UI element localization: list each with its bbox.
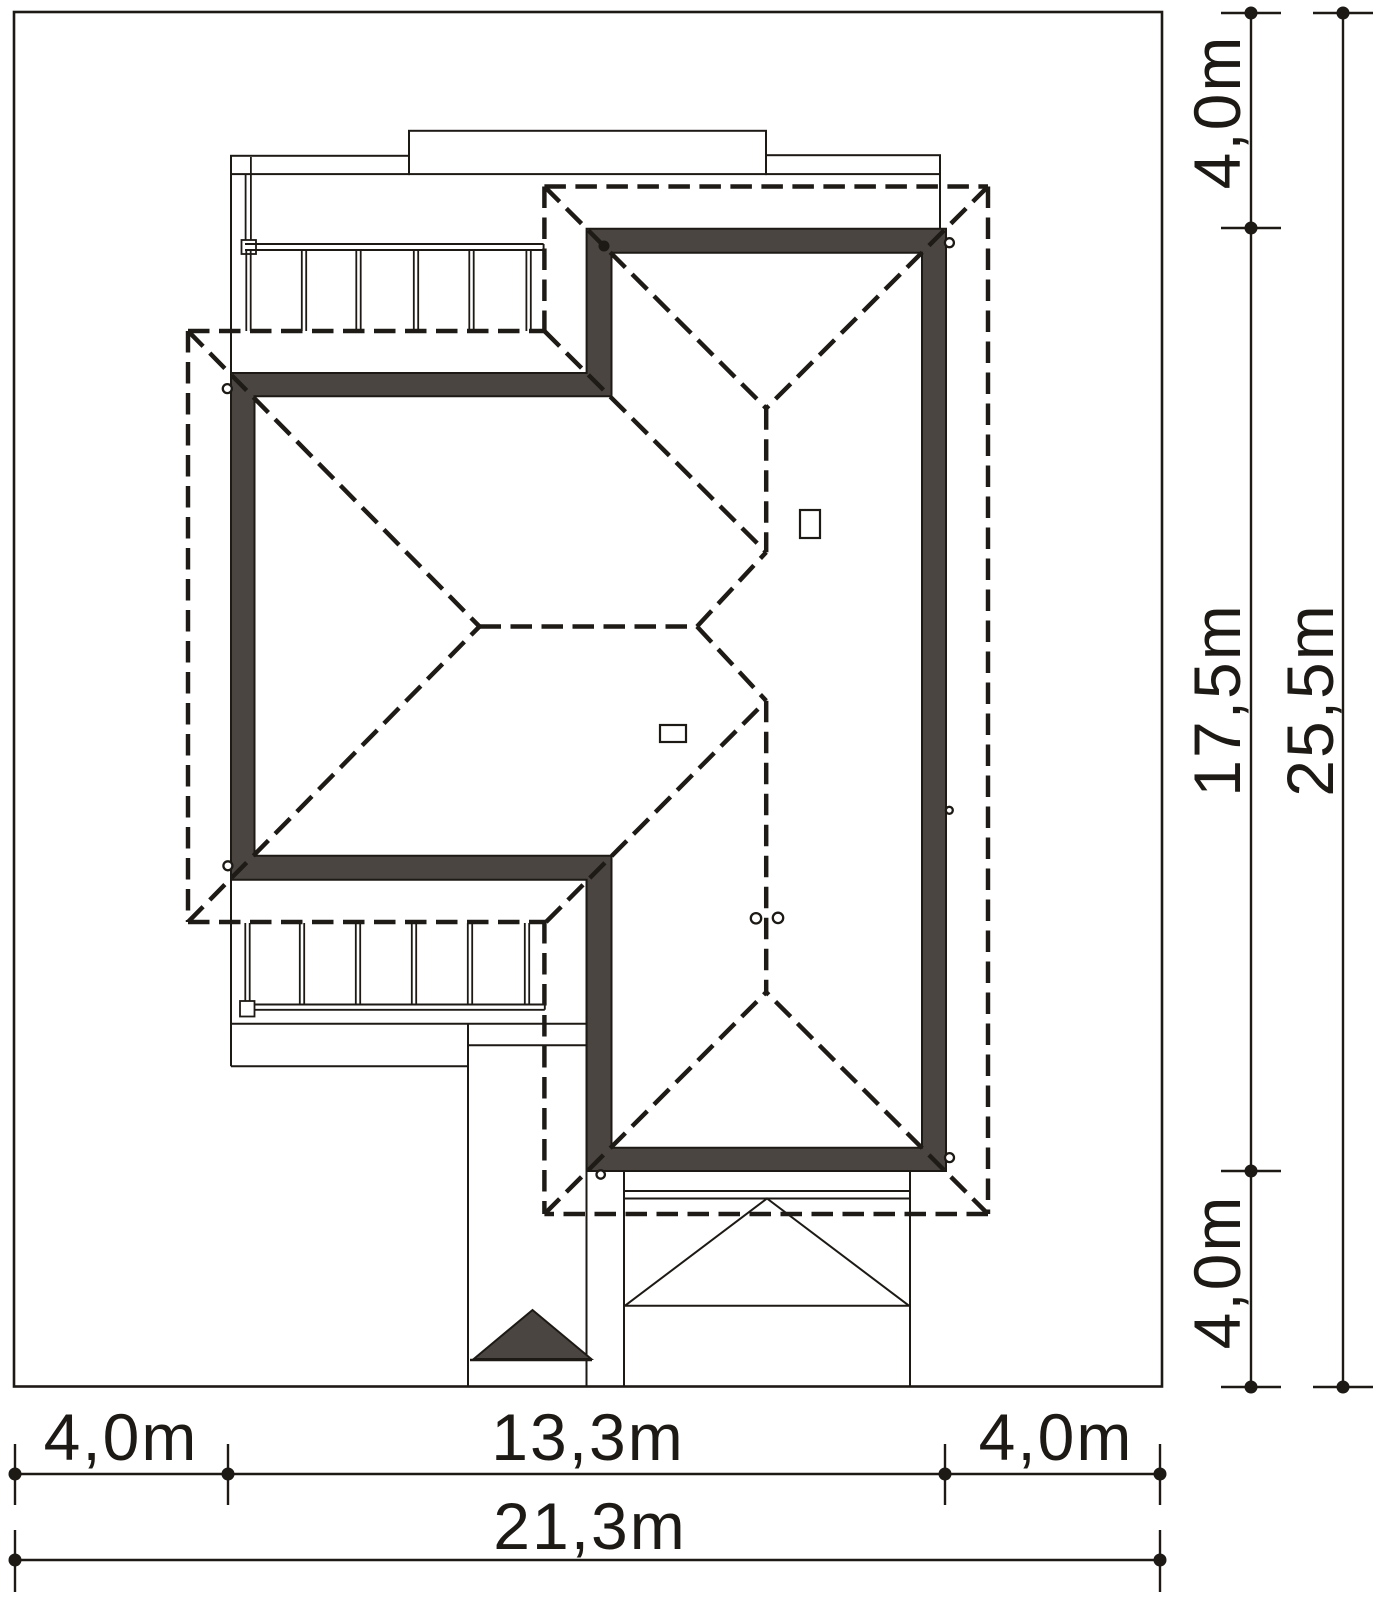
svg-text:13,3m: 13,3m <box>491 1400 684 1474</box>
svg-text:17,5m: 17,5m <box>1180 603 1254 796</box>
svg-text:4,0m: 4,0m <box>1180 1195 1254 1350</box>
svg-text:4,0m: 4,0m <box>44 1400 199 1474</box>
svg-text:21,3m: 21,3m <box>493 1489 686 1563</box>
svg-text:4,0m: 4,0m <box>979 1400 1134 1474</box>
svg-text:4,0m: 4,0m <box>1180 35 1254 190</box>
svg-text:25,5m: 25,5m <box>1273 603 1347 796</box>
